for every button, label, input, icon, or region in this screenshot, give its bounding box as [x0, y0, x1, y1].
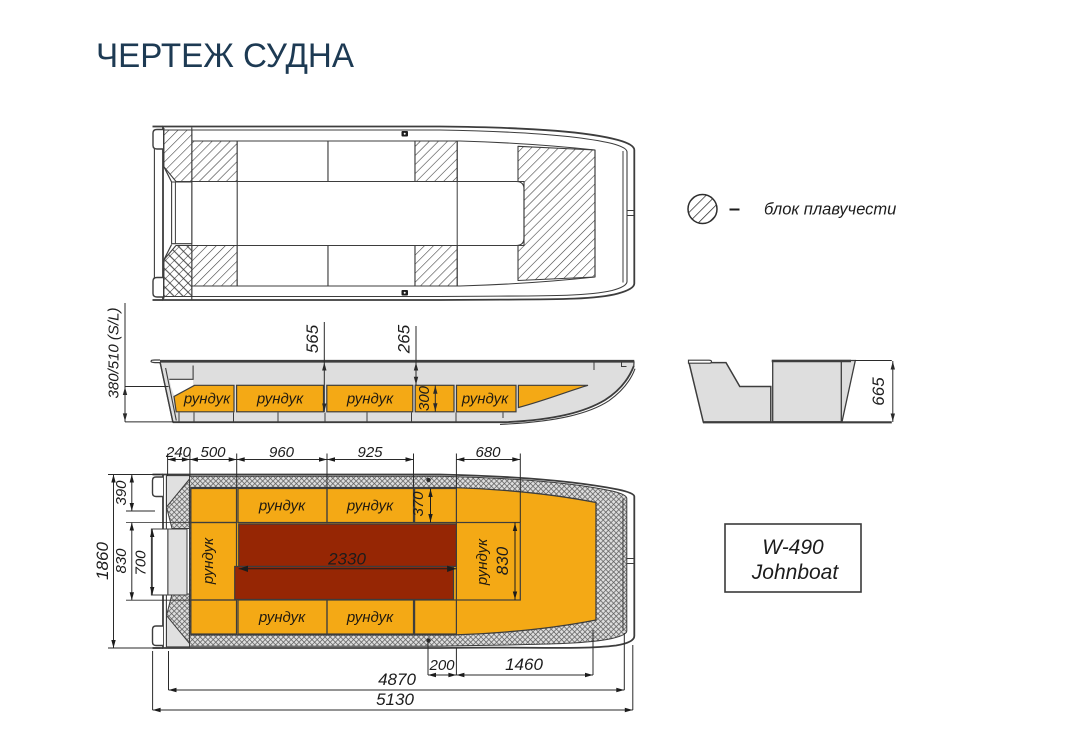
svg-text:рундук: рундук	[183, 391, 231, 408]
svg-text:рундук: рундук	[256, 391, 304, 408]
svg-text:390: 390	[113, 480, 130, 506]
svg-text:4870: 4870	[378, 670, 416, 689]
svg-text:700: 700	[133, 550, 150, 576]
svg-text:1860: 1860	[93, 542, 112, 580]
svg-text:500: 500	[200, 444, 226, 461]
svg-text:565: 565	[303, 324, 322, 353]
svg-text:925: 925	[357, 444, 383, 461]
svg-text:рундук: рундук	[200, 537, 217, 585]
svg-text:200: 200	[428, 657, 455, 674]
svg-text:240: 240	[165, 444, 192, 461]
svg-text:680: 680	[475, 444, 501, 461]
svg-text:рундук: рундук	[346, 609, 394, 626]
svg-text:рундук: рундук	[346, 498, 394, 515]
svg-text:665: 665	[869, 377, 888, 406]
svg-text:рундук: рундук	[474, 538, 491, 586]
svg-text:рундук: рундук	[258, 609, 306, 626]
svg-text:W-490: W-490	[762, 536, 824, 559]
svg-text:830: 830	[113, 548, 130, 574]
svg-text:300: 300	[416, 385, 433, 411]
svg-text:рундук: рундук	[461, 391, 509, 408]
svg-text:960: 960	[269, 444, 295, 461]
svg-text:рундук: рундук	[258, 498, 306, 515]
svg-text:2330: 2330	[327, 550, 366, 569]
svg-text:рундук: рундук	[346, 391, 394, 408]
svg-text:ЧЕРТЕЖ СУДНА: ЧЕРТЕЖ СУДНА	[96, 37, 354, 75]
svg-text:380/510 (S/L): 380/510 (S/L)	[106, 308, 123, 399]
svg-text:370: 370	[410, 491, 427, 517]
svg-text:блок плавучести: блок плавучести	[764, 201, 896, 219]
svg-text:Johnboat: Johnboat	[751, 561, 840, 584]
svg-text:1460: 1460	[505, 655, 543, 674]
svg-text:265: 265	[395, 324, 414, 354]
svg-text:5130: 5130	[376, 690, 414, 709]
svg-text:830: 830	[493, 546, 512, 575]
